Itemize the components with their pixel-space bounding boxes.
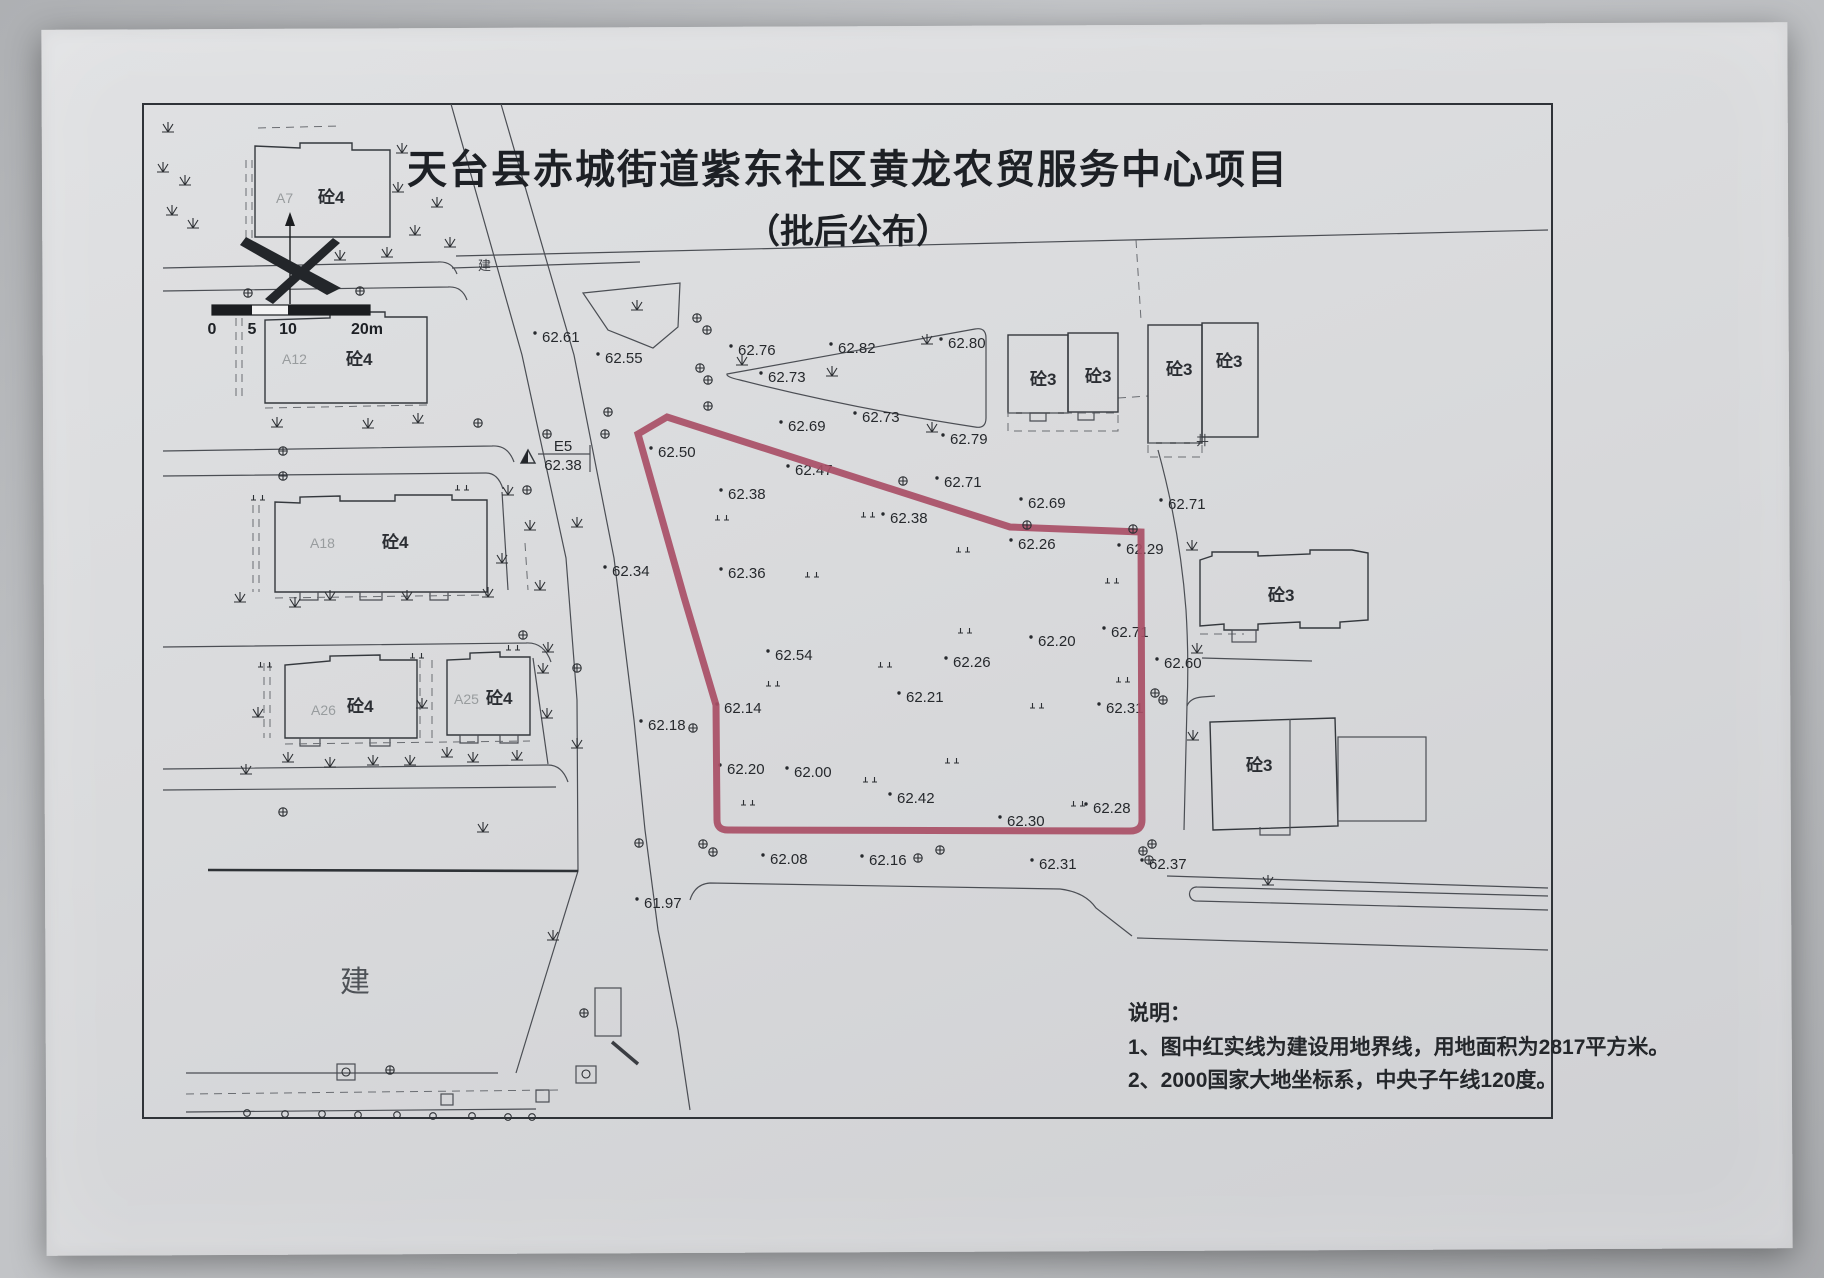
well-icon <box>474 419 482 427</box>
spot-elevation: 62.71 <box>1168 496 1206 513</box>
spot-elevation: 62.31 <box>1106 700 1144 717</box>
well-icon <box>689 724 697 732</box>
well-icon <box>709 848 717 856</box>
well-icon <box>699 840 707 848</box>
building-code: A18 <box>310 535 335 551</box>
spot-elevation: 62.14 <box>724 700 762 717</box>
spot-elevation: 62.00 <box>794 764 832 781</box>
spot-elevation: 62.29 <box>1126 541 1164 558</box>
well-icon <box>1129 525 1137 533</box>
building-type: 砼3 <box>1166 359 1192 379</box>
road-network <box>163 104 1548 1112</box>
well-icon <box>604 408 612 416</box>
spot-elevation-layer: 62.6162.5562.7662.8262.8062.7362.7362.69… <box>533 329 1205 912</box>
notes-heading: 说明： <box>1128 1001 1191 1025</box>
spot-elevation-dot <box>1030 858 1033 861</box>
spot-elevation: 62.21 <box>906 689 944 706</box>
note-line-2: 2、2000国家大地坐标系，中央子午线120度。 <box>1128 1068 1557 1092</box>
grass-icon <box>455 485 469 490</box>
spot-elevation: 62.71 <box>944 474 982 491</box>
spot-elevation: 62.20 <box>1038 633 1076 650</box>
spot-elevation: 62.82 <box>838 340 876 357</box>
datum-label: E5 <box>554 438 572 455</box>
spot-elevation: 62.18 <box>648 717 686 734</box>
spot-elevation: 62.36 <box>728 565 766 582</box>
building-code: A25 <box>454 691 479 707</box>
grass-icon <box>945 758 959 763</box>
tree-icon <box>1187 730 1199 740</box>
spot-elevation: 62.60 <box>1164 655 1202 672</box>
spot-elevation: 62.37 <box>1149 856 1187 873</box>
tree-icon <box>271 417 283 427</box>
spot-elevation-dot <box>1140 858 1143 861</box>
spot-elevation: 62.50 <box>658 444 696 461</box>
spot-elevation: 62.42 <box>897 790 935 807</box>
under-construction-label: 建 <box>340 966 370 999</box>
well-icon <box>1023 521 1031 529</box>
tree-icon <box>334 250 346 260</box>
building-c3-6 <box>1210 718 1338 830</box>
scale-bar: 0 5 10 20m <box>208 305 383 338</box>
scale-tick-20m: 20m <box>351 321 383 338</box>
building-c3-3 <box>1148 325 1202 443</box>
spot-elevation: 61.97 <box>644 895 682 912</box>
notes-block: 说明： 1、图中红实线为建设用地界线，用地面积为2817平方米。 2、2000国… <box>1128 1001 1669 1092</box>
spot-elevation-dot <box>939 337 942 340</box>
tree-icon <box>412 413 424 423</box>
tree-icon <box>477 822 489 832</box>
well-icon <box>693 314 701 322</box>
grass-icon <box>506 645 520 650</box>
building-type: 砼3 <box>1246 755 1272 775</box>
spot-elevation-dot <box>786 464 789 467</box>
well-icon <box>635 839 643 847</box>
spot-elevation: 62.79 <box>950 431 988 448</box>
tree-icon <box>431 197 443 207</box>
building-code: A12 <box>282 351 307 367</box>
spot-elevation-dot <box>766 649 769 652</box>
spot-elevation: 62.61 <box>542 329 580 346</box>
tree-icon <box>1186 540 1198 550</box>
well-icon <box>1145 856 1153 864</box>
tree-icon <box>571 738 583 748</box>
spot-elevation-dot <box>533 331 536 334</box>
well-icon <box>1139 847 1147 855</box>
building-c3-4 <box>1202 323 1258 437</box>
spot-elevation-dot <box>1009 538 1012 541</box>
construction-boundary <box>638 417 1142 831</box>
datum-point-e5: E5 62.38 <box>521 438 590 474</box>
tree-icon <box>444 237 456 247</box>
building-code: A26 <box>311 702 336 718</box>
spot-elevation-dot <box>860 854 863 857</box>
spot-elevation: 62.08 <box>770 851 808 868</box>
tree-icon <box>282 752 294 762</box>
building-type: 砼4 <box>382 532 409 552</box>
spot-elevation-dot <box>719 488 722 491</box>
spot-elevation: 62.69 <box>788 418 826 435</box>
spot-elevation-dot <box>761 853 764 856</box>
spot-elevation-dot <box>639 719 642 722</box>
spot-elevation-dot <box>853 411 856 414</box>
spot-elevation-dot <box>888 792 891 795</box>
spot-elevation-dot <box>1155 657 1158 660</box>
grass-icon <box>863 777 877 782</box>
tree-icon <box>502 485 514 495</box>
spot-elevation-dot <box>759 371 762 374</box>
page-title: 天台县赤城街道紫东社区黄龙农贸服务中心项目 <box>407 148 1289 192</box>
grass-icon <box>805 572 819 577</box>
spot-elevation-dot <box>998 815 1001 818</box>
well-icon <box>704 402 712 410</box>
grass-icon <box>251 495 265 500</box>
well-icon <box>899 477 907 485</box>
tree-icon <box>524 520 536 530</box>
spot-elevation-dot <box>1029 635 1032 638</box>
site-plan-drawing: 0 5 10 20m E5 62.38 62.6162.5562.7662.82… <box>0 0 1824 1278</box>
spot-elevation-dot <box>935 476 938 479</box>
tree-icon <box>571 517 583 527</box>
spot-elevation: 62.55 <box>605 350 643 367</box>
tree-icon <box>324 757 336 767</box>
spot-elevation-dot <box>897 691 900 694</box>
building-type: 砼3 <box>1216 351 1242 371</box>
well-icon <box>279 472 287 480</box>
tree-icon <box>441 747 453 757</box>
scale-tick-10: 10 <box>279 321 297 338</box>
tree-icon <box>534 580 546 590</box>
tree-icon <box>240 764 252 774</box>
small-shed <box>595 988 621 1036</box>
well-icon <box>573 664 581 672</box>
tree-icon <box>542 642 554 652</box>
building-type: 砼3 <box>1268 585 1294 605</box>
tree-icon <box>166 205 178 215</box>
tree-icon <box>631 300 643 310</box>
well-icon <box>523 486 531 494</box>
well-icon <box>519 631 527 639</box>
grass-icon <box>766 681 780 686</box>
spot-elevation: 62.20 <box>727 761 765 778</box>
tree-icon <box>187 218 199 228</box>
tree-icon <box>157 162 169 172</box>
tree-icon <box>162 122 174 132</box>
grass-icon <box>1030 703 1044 708</box>
tree-icon <box>381 247 393 257</box>
well-icon <box>1159 696 1167 704</box>
grass-icon <box>715 515 729 520</box>
under-construction-label: 建 <box>478 258 491 273</box>
ground-parcels <box>583 283 986 427</box>
tree-icon <box>541 708 553 718</box>
datum-elevation: 62.38 <box>544 457 582 474</box>
grass-icon <box>878 662 892 667</box>
well-icon <box>386 1066 394 1074</box>
building-a18 <box>275 495 487 592</box>
spot-elevation: 62.73 <box>862 409 900 426</box>
spot-elevation: 62.73 <box>768 369 806 386</box>
well-icon <box>914 854 922 862</box>
spot-elevation-dot <box>829 342 832 345</box>
spot-elevation-dot <box>785 766 788 769</box>
tree-icon <box>511 750 523 760</box>
tree-icon <box>252 707 264 717</box>
building-code: A7 <box>276 190 293 206</box>
note-line-1: 1、图中红实线为建设用地界线，用地面积为2817平方米。 <box>1128 1035 1669 1059</box>
spot-elevation: 62.38 <box>728 486 766 503</box>
boundary-red-line <box>638 417 1142 831</box>
tree-icon <box>416 698 428 708</box>
tree-icon <box>1262 875 1274 885</box>
spot-elevation: 62.69 <box>1028 495 1066 512</box>
well-icon <box>356 287 364 295</box>
tree-icon <box>367 755 379 765</box>
tree-icon <box>179 175 191 185</box>
well-icon <box>703 326 711 334</box>
spot-elevation: 62.54 <box>775 647 813 664</box>
tree-icon <box>392 182 404 192</box>
well-icon <box>1148 840 1156 848</box>
tree-icon <box>467 752 479 762</box>
spot-elevation-dot <box>729 344 732 347</box>
well-icon <box>543 430 551 438</box>
well-icon <box>1151 689 1159 697</box>
spot-elevation-dot <box>1159 498 1162 501</box>
spot-elevation-dot <box>1084 802 1087 805</box>
building-type: 砼4 <box>318 187 345 207</box>
spot-elevation-dot <box>1117 543 1120 546</box>
tree-icon <box>1191 643 1203 653</box>
spot-elevation: 62.31 <box>1039 856 1077 873</box>
building-type: 砼3 <box>1030 369 1056 389</box>
tree-icon <box>826 366 838 376</box>
spot-elevation: 62.76 <box>738 342 776 359</box>
well-icon <box>279 447 287 455</box>
spot-elevation: 62.80 <box>948 335 986 352</box>
bottom-construction-area <box>244 988 638 1120</box>
well-icon <box>279 808 287 816</box>
grass-icon <box>741 800 755 805</box>
well-icon <box>244 289 252 297</box>
grass-icon <box>861 512 875 517</box>
well-icon <box>936 846 944 854</box>
spot-elevation-dot <box>719 567 722 570</box>
grass-icon <box>1105 578 1119 583</box>
right-building-blocks <box>1008 323 1426 835</box>
spot-elevation-dot <box>635 897 638 900</box>
spot-elevation-dot <box>1097 702 1100 705</box>
well-icon <box>696 364 704 372</box>
grass-icon <box>258 662 272 667</box>
tree-icon <box>409 225 421 235</box>
tree-icon <box>537 663 549 673</box>
spot-elevation-dot <box>1102 626 1105 629</box>
scale-tick-0: 0 <box>208 321 217 338</box>
grass-icon <box>958 628 972 633</box>
spot-elevation: 62.34 <box>612 563 650 580</box>
building-type: 砼4 <box>486 688 513 708</box>
grass-icon <box>410 653 424 658</box>
spot-elevation-dot <box>941 433 944 436</box>
well-icon <box>704 376 712 384</box>
well-icon <box>580 1009 588 1017</box>
spot-elevation-dot <box>603 565 606 568</box>
spot-elevation: 62.26 <box>953 654 991 671</box>
tree-icon <box>404 755 416 765</box>
page-subtitle: （批后公布） <box>746 212 950 251</box>
building-type: 砼3 <box>1085 366 1111 386</box>
spot-elevation-dot <box>1019 497 1022 500</box>
tree-icon <box>234 592 246 602</box>
grass-icon <box>1116 677 1130 682</box>
spot-elevation: 62.38 <box>890 510 928 527</box>
spot-elevation-dot <box>944 656 947 659</box>
spot-elevation-dot <box>779 420 782 423</box>
spot-elevation: 62.28 <box>1093 800 1131 817</box>
tree-icon <box>926 422 938 432</box>
tree-icon <box>362 418 374 428</box>
spot-elevation-dot <box>881 512 884 515</box>
scale-tick-5: 5 <box>248 321 257 338</box>
building-type: 砼4 <box>346 349 373 369</box>
well-icon <box>601 430 609 438</box>
spot-elevation: 62.26 <box>1018 536 1056 553</box>
building-type: 砼4 <box>347 696 374 716</box>
left-building-blocks <box>236 126 530 746</box>
well-label: 井 <box>1196 433 1209 448</box>
spot-elevation-dot <box>596 352 599 355</box>
spot-elevation-dot <box>649 446 652 449</box>
grass-icon <box>1071 801 1085 806</box>
spot-elevation: 62.16 <box>869 852 907 869</box>
grass-icon <box>956 547 970 552</box>
tree-icon <box>289 597 301 607</box>
